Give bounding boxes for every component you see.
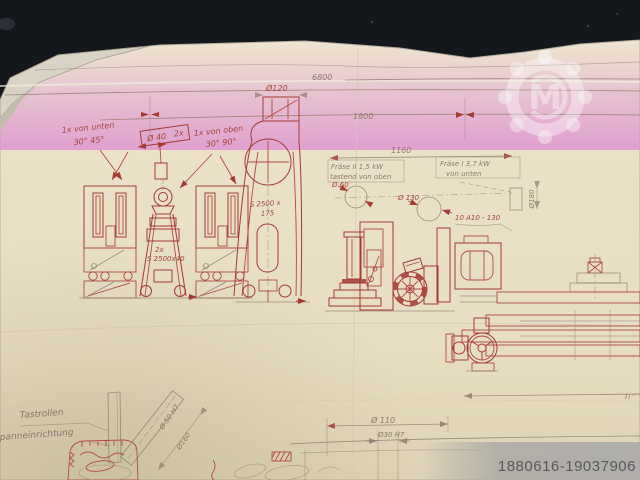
dia-110-label: Ø 110 <box>370 415 395 425</box>
blueprint-photo-svg: 6800 1800 1x von unten 30° 45° 1x von ob… <box>0 0 640 480</box>
gear-watermark-icon: M <box>498 50 592 144</box>
dia-120-label: Ø120 <box>265 83 288 93</box>
fraese2-label-1: Fräse II 1,5 kW <box>331 163 384 171</box>
belt-large-size-2: 175 <box>261 209 275 218</box>
fraese2-label-2: tastend von oben <box>330 173 391 181</box>
dia-180-label: Ø180 <box>528 189 536 209</box>
watermark-letter: M <box>528 78 562 118</box>
spindle-qty-label: 2x <box>173 128 184 138</box>
dim-1800-label: 1800 <box>353 112 373 121</box>
tool-spec-label: 10 A10 - 130 <box>455 214 501 222</box>
dim-1160-label: 1160 <box>391 146 411 155</box>
fraese1-label-2: von unten <box>446 170 481 178</box>
dim-6800-label: 6800 <box>312 73 332 82</box>
listing-id-text: 1880616-19037906 <box>498 458 636 475</box>
corner-fragment-label: Ti <box>624 393 630 401</box>
belt-small-size: S 2500x40 <box>147 255 185 263</box>
listing-photo: 6800 1800 1x von unten 30° 45° 1x von ob… <box>0 0 640 480</box>
fraese1-label-1: Fräse I 3,7 kW <box>440 160 491 168</box>
dia-60-label: Ø 60 <box>331 181 349 189</box>
dia-30h7-label: Ø30 H7 <box>377 431 405 439</box>
belt-small-qty: 2x <box>155 246 164 254</box>
